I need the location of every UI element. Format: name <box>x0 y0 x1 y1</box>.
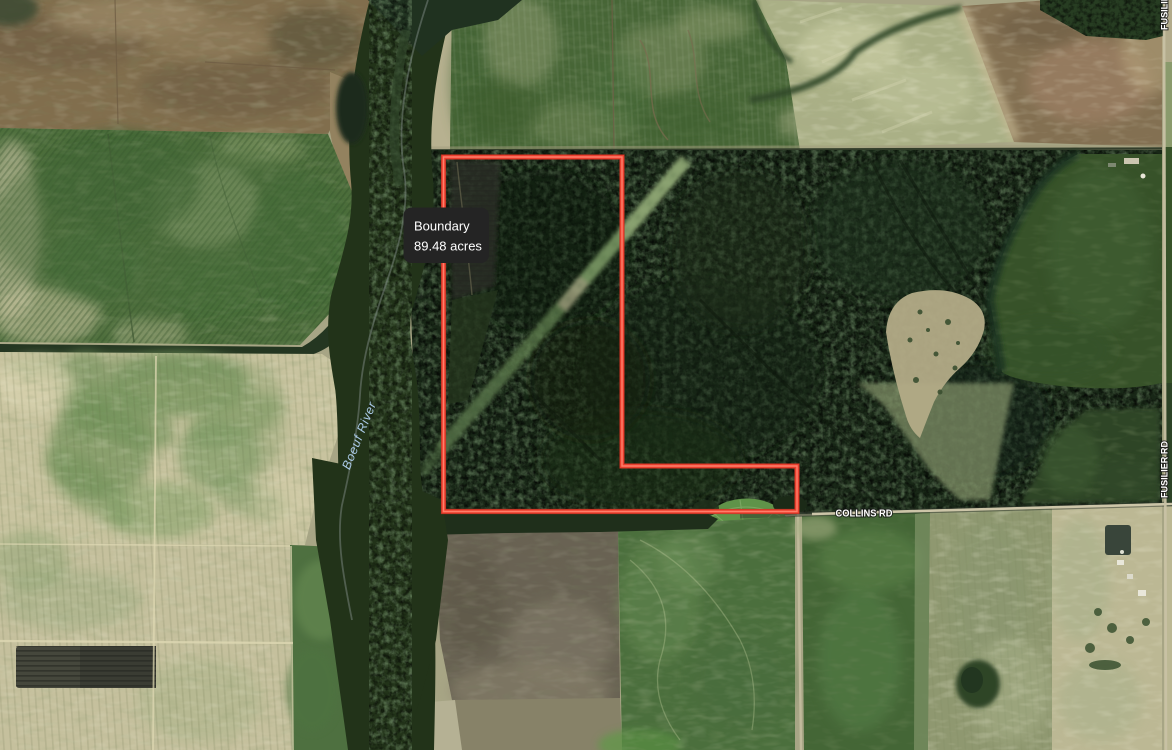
svg-text:FUSILIER RD: FUSILIER RD <box>1160 0 1171 30</box>
svg-text:89.48 acres: 89.48 acres <box>414 239 482 254</box>
svg-text:COLLINS RD: COLLINS RD <box>836 509 893 520</box>
svg-text:Boundary: Boundary <box>414 219 470 234</box>
svg-text:FUSILIER RD: FUSILIER RD <box>1160 441 1171 498</box>
